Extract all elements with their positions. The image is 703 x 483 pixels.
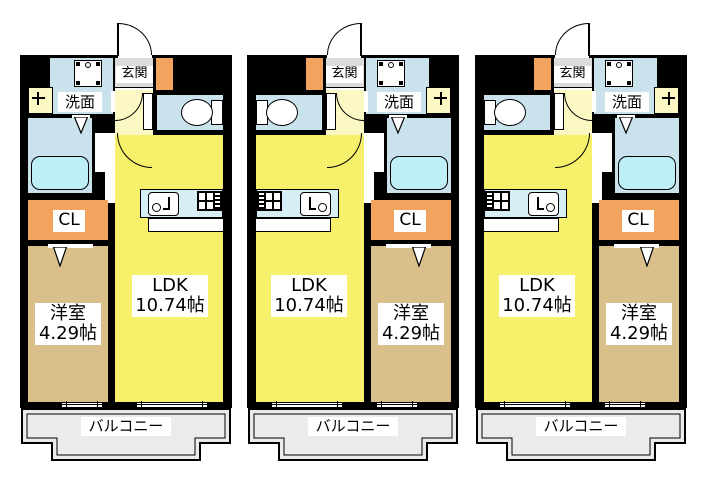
burner-icon bbox=[266, 202, 272, 209]
washing-machine-pad bbox=[96, 62, 100, 66]
ldk-name-text: LDK bbox=[291, 276, 327, 296]
washing-machine-icon bbox=[74, 60, 102, 87]
washroom-label: 洗面 bbox=[58, 92, 102, 112]
floor-plan: 玄関 洗面 CL LDK 10.74帖 洋室 4.29帖 バルコニー bbox=[0, 0, 703, 483]
bedroom-size-text: 4.29帖 bbox=[39, 324, 97, 344]
kitchen-counter-front bbox=[256, 218, 331, 232]
burner-icon bbox=[207, 202, 213, 209]
entrance-label: 玄関 bbox=[326, 66, 363, 83]
burner-icon bbox=[274, 193, 280, 200]
entrance-label: 玄関 bbox=[554, 66, 591, 83]
vanity-sink-icon bbox=[426, 87, 451, 114]
stove-icon bbox=[257, 191, 282, 211]
bathroom-folding-door-icon bbox=[390, 117, 406, 134]
interior-door-icon bbox=[326, 93, 336, 130]
balcony-label: バルコニー bbox=[81, 417, 171, 436]
closet-label: CL bbox=[622, 210, 654, 232]
ldk-name-text: LDK bbox=[152, 276, 188, 296]
washing-machine-icon bbox=[377, 60, 405, 87]
bedroom-label: 洋室 4.29帖 bbox=[35, 303, 101, 345]
faucet-icon bbox=[537, 197, 539, 210]
washing-machine-hose-icon bbox=[85, 62, 91, 68]
washing-machine-pad bbox=[379, 62, 383, 66]
burner-icon bbox=[502, 193, 508, 200]
washing-machine-icon bbox=[605, 60, 633, 87]
balcony-label: バルコニー bbox=[308, 417, 398, 436]
toilet-bowl-icon bbox=[494, 99, 526, 126]
kitchen-sink-icon bbox=[148, 192, 179, 216]
sink-basin-icon bbox=[546, 203, 555, 212]
washing-machine-pad bbox=[399, 81, 403, 85]
corridor-door-opening bbox=[592, 172, 602, 203]
kitchen-counter-front bbox=[148, 218, 223, 232]
faucet-icon bbox=[168, 197, 170, 210]
bedroom-label: 洋室 4.29帖 bbox=[606, 303, 672, 345]
corridor-door-opening bbox=[105, 172, 115, 203]
bedroom-name-text: 洋室 bbox=[621, 304, 657, 324]
closet-folding-door-icon bbox=[639, 247, 655, 267]
bathroom-folding-door-icon bbox=[73, 117, 89, 134]
balcony-label-text: バルコニー bbox=[89, 418, 164, 435]
vanity-sink-icon bbox=[28, 87, 53, 114]
ldk-room bbox=[484, 135, 592, 402]
burner-icon bbox=[266, 193, 272, 200]
closet-label-text: CL bbox=[58, 211, 79, 230]
unit-1: 玄関 洗面 CL LDK 10.74帖 洋室 4.29帖 バルコニー bbox=[20, 55, 232, 408]
washroom-label-text: 洗面 bbox=[612, 94, 642, 111]
burner-icon bbox=[494, 193, 500, 200]
entrance-door-arc-icon bbox=[555, 23, 589, 55]
washing-machine-pad bbox=[76, 81, 80, 85]
corridor-door-opening bbox=[364, 133, 384, 172]
ldk-size-text: 10.74帖 bbox=[274, 296, 344, 316]
bedroom-name-text: 洋室 bbox=[393, 304, 429, 324]
bedroom-size-text: 4.29帖 bbox=[610, 324, 668, 344]
grill-icon bbox=[259, 193, 264, 209]
closet-label-text: CL bbox=[627, 211, 648, 230]
balcony-label-text: バルコニー bbox=[544, 418, 619, 435]
entrance-label-text: 玄関 bbox=[121, 67, 147, 82]
ldk-label: LDK 10.74帖 bbox=[271, 275, 347, 317]
corridor-door-opening bbox=[95, 133, 115, 172]
washing-machine-hose-icon bbox=[388, 62, 394, 68]
washroom-label-text: 洗面 bbox=[65, 94, 95, 111]
unit-3: 玄関 洗面 CL LDK 10.74帖 洋室 4.29帖 バルコニー bbox=[475, 55, 687, 408]
interior-door-icon bbox=[143, 93, 153, 130]
stove-icon bbox=[485, 191, 510, 211]
washing-machine-pad bbox=[627, 81, 631, 85]
ldk-size-text: 10.74帖 bbox=[502, 296, 572, 316]
shoe-cabinet bbox=[306, 58, 323, 90]
entrance-door-opening bbox=[555, 55, 589, 58]
bedroom-label: 洋室 4.29帖 bbox=[378, 303, 444, 345]
balcony-label-text: バルコニー bbox=[316, 418, 391, 435]
burner-icon bbox=[274, 202, 280, 209]
grill-icon bbox=[487, 193, 492, 209]
washing-machine-pad bbox=[399, 62, 403, 66]
entrance-door-arc-icon bbox=[118, 23, 152, 55]
bathtub-icon bbox=[390, 156, 448, 190]
kitchen-counter-front bbox=[484, 218, 559, 232]
washing-machine-pad bbox=[627, 62, 631, 66]
toilet-bowl-icon bbox=[266, 99, 298, 126]
washroom-label: 洗面 bbox=[605, 92, 649, 112]
washroom-label-text: 洗面 bbox=[384, 94, 414, 111]
shoe-cabinet bbox=[534, 58, 551, 90]
interior-door-icon bbox=[554, 93, 564, 130]
ldk-label: LDK 10.74帖 bbox=[132, 275, 208, 317]
entrance-door-arc-icon bbox=[327, 23, 361, 55]
kitchen-sink-icon bbox=[528, 192, 559, 216]
closet-folding-door-icon bbox=[411, 247, 427, 267]
ldk-room bbox=[115, 135, 223, 402]
washing-machine-pad bbox=[379, 81, 383, 85]
entrance-label-text: 玄関 bbox=[559, 67, 585, 82]
unit-2: 玄関 洗面 CL LDK 10.74帖 洋室 4.29帖 バルコニー bbox=[247, 55, 459, 408]
bathtub-icon bbox=[618, 156, 676, 190]
faucet-icon bbox=[309, 197, 311, 210]
closet-label: CL bbox=[53, 210, 85, 232]
stove-icon bbox=[197, 191, 222, 211]
closet-label: CL bbox=[394, 210, 426, 232]
burner-icon bbox=[199, 202, 205, 209]
bedroom-size-text: 4.29帖 bbox=[382, 324, 440, 344]
entrance-door-opening bbox=[118, 55, 152, 58]
washroom-label: 洗面 bbox=[377, 92, 421, 112]
bathtub-icon bbox=[31, 156, 89, 190]
sink-basin-icon bbox=[152, 203, 161, 212]
washing-machine-hose-icon bbox=[616, 62, 622, 68]
closet-folding-door-icon bbox=[52, 247, 68, 267]
ldk-room bbox=[256, 135, 364, 402]
sink-basin-icon bbox=[318, 203, 327, 212]
ldk-label: LDK 10.74帖 bbox=[499, 275, 575, 317]
balcony-label: バルコニー bbox=[536, 417, 626, 436]
entrance-label: 玄関 bbox=[116, 66, 153, 83]
corridor-door-opening bbox=[364, 172, 374, 203]
closet-label-text: CL bbox=[399, 211, 420, 230]
bathroom-folding-door-icon bbox=[618, 117, 634, 134]
washing-machine-pad bbox=[96, 81, 100, 85]
burner-icon bbox=[494, 202, 500, 209]
ldk-size-text: 10.74帖 bbox=[135, 296, 205, 316]
washing-machine-pad bbox=[607, 62, 611, 66]
washing-machine-pad bbox=[76, 62, 80, 66]
burner-icon bbox=[502, 202, 508, 209]
shoe-cabinet bbox=[156, 58, 173, 90]
grill-icon bbox=[215, 193, 220, 209]
washing-machine-pad bbox=[607, 81, 611, 85]
vanity-sink-icon bbox=[654, 87, 679, 114]
kitchen-sink-icon bbox=[300, 192, 331, 216]
burner-icon bbox=[199, 193, 205, 200]
burner-icon bbox=[207, 193, 213, 200]
bedroom-name-text: 洋室 bbox=[50, 304, 86, 324]
entrance-door-opening bbox=[327, 55, 361, 58]
toilet-bowl-icon bbox=[181, 99, 213, 126]
ldk-name-text: LDK bbox=[519, 276, 555, 296]
entrance-label-text: 玄関 bbox=[331, 67, 357, 82]
corridor-door-opening bbox=[592, 133, 612, 172]
